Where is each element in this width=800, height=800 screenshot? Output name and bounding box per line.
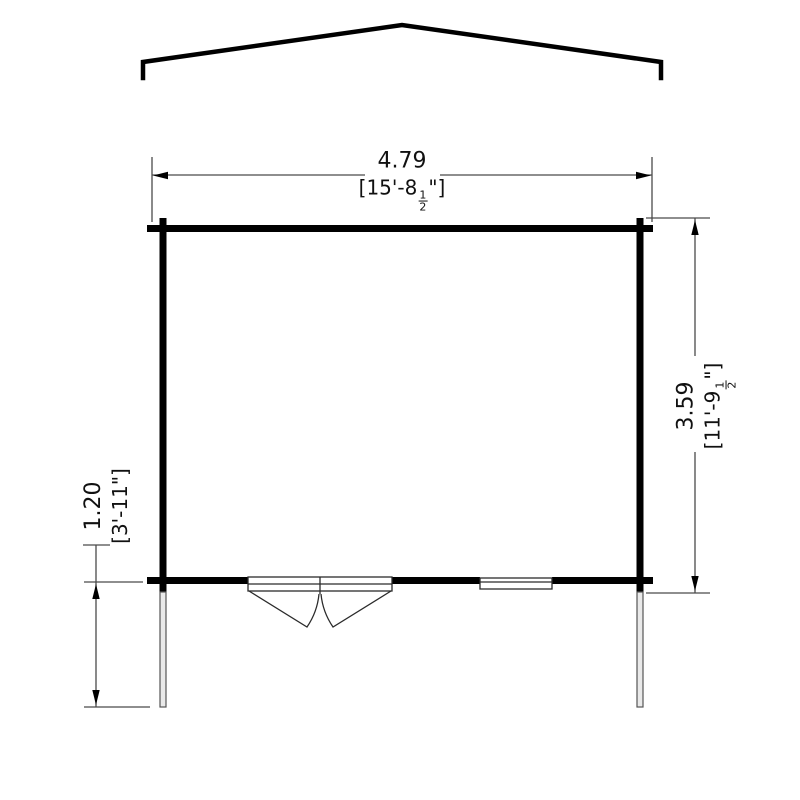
depth-dimension-label: 3.59 [11'-912"]: [674, 363, 739, 450]
canopy-arrow-top: [92, 584, 99, 599]
floor-plan-drawing: 4.79 [15'-812"] 3.59 [11'-912"] 1.20 [3'…: [0, 0, 800, 800]
canopy-arrow-bottom: [92, 690, 99, 705]
front-window: [480, 578, 552, 589]
width-metric-value: 4.79: [359, 149, 446, 175]
canopy-dimension-label: 1.20 [3'-11"]: [81, 468, 133, 544]
depth-arrow-bottom: [691, 576, 698, 591]
door-swing-right: [321, 591, 391, 627]
width-arrow-right: [636, 172, 651, 179]
veranda-posts: [160, 592, 643, 707]
veranda-post-right: [637, 592, 643, 707]
plan-walls: [147, 218, 653, 592]
width-dimension-label: 4.79 [15'-812"]: [359, 149, 446, 214]
depth-arrow-top: [691, 220, 698, 235]
double-door: [248, 577, 392, 627]
canopy-metric-value: 1.20: [81, 468, 107, 544]
veranda-post-left: [160, 592, 166, 707]
canopy-imperial-value: [3'-11"]: [107, 468, 133, 544]
depth-fraction: 12: [714, 380, 738, 391]
canopy-dimension: [83, 545, 150, 707]
depth-imperial-value: [11'-912"]: [700, 363, 739, 450]
door-swing-left: [249, 591, 319, 627]
width-imperial-value: [15'-812"]: [359, 175, 446, 214]
window-frame: [480, 578, 552, 589]
width-arrow-left: [153, 172, 168, 179]
roof-outline: [143, 25, 661, 78]
width-fraction: 12: [417, 189, 428, 213]
depth-metric-value: 3.59: [674, 363, 700, 450]
